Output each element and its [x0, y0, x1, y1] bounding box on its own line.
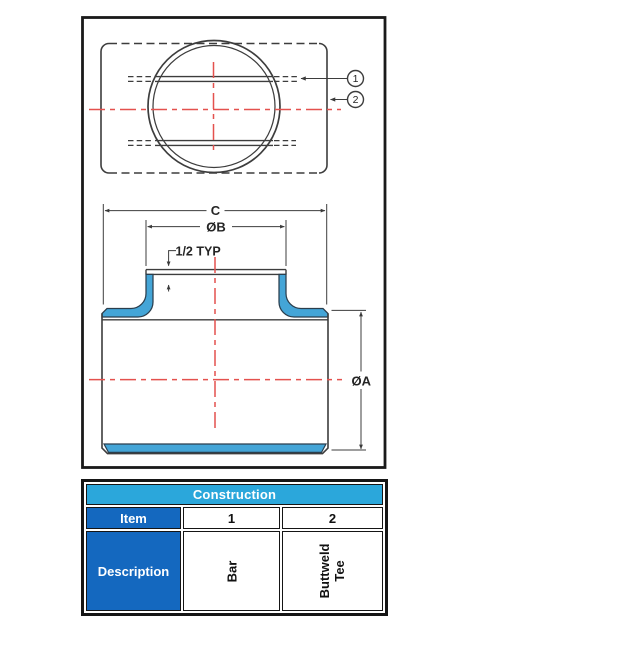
item-1-cell: 1: [183, 507, 280, 529]
page: 1 2 C ØB: [0, 0, 638, 650]
construction-table: Construction Item 1 2 Description Bar Bu…: [81, 479, 388, 616]
balloon-1-label: 1: [353, 73, 359, 85]
item-2-cell: 2: [282, 507, 383, 529]
description-1-text: Bar: [224, 560, 239, 582]
dim-c-label: C: [211, 203, 221, 218]
table-title-cell: Construction: [86, 484, 383, 505]
item-row-header-cell: Item: [86, 507, 181, 529]
dim-typ-label: 1/2 TYP: [176, 245, 221, 259]
description-row-header-cell: Description: [86, 531, 181, 611]
drawing-border: [83, 18, 386, 468]
dim-b-label: ØB: [206, 220, 226, 235]
description-2-cell: Buttweld Tee: [282, 531, 383, 611]
description-2-text: Buttweld Tee: [318, 538, 348, 604]
bevel-bottom: [104, 444, 326, 452]
dim-a-label: ØA: [352, 373, 372, 388]
balloon-2-label: 2: [353, 94, 359, 106]
technical-drawing: 1 2 C ØB: [0, 0, 638, 474]
description-1-cell: Bar: [183, 531, 280, 611]
